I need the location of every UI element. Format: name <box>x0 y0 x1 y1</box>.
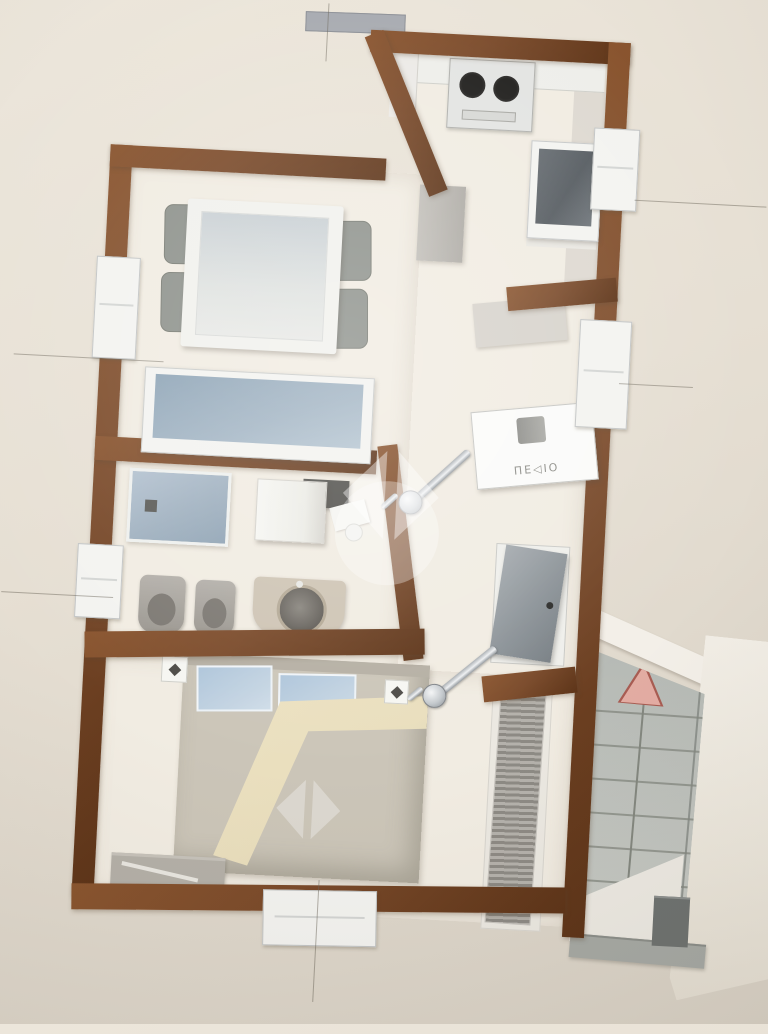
dimension-line <box>635 200 767 208</box>
stair-tread-line <box>583 777 697 787</box>
shower-tray <box>126 468 232 547</box>
bedside-lamp <box>384 679 409 704</box>
burner-icon <box>459 71 486 98</box>
window-right-kitchen <box>590 128 640 212</box>
wall-bedroom-top-left <box>84 629 424 658</box>
shower-drain-icon <box>145 500 158 513</box>
panel-display <box>516 416 546 444</box>
watermark-logo-small <box>275 776 342 843</box>
stair-tread-line <box>589 709 703 719</box>
sink-basin <box>275 584 328 637</box>
dining-table <box>180 198 344 354</box>
dimension-line <box>619 383 693 388</box>
bidet-bowl <box>202 598 228 629</box>
pillow <box>197 665 273 711</box>
stair-wall-stub <box>652 896 691 948</box>
stair-tread-line <box>580 811 694 821</box>
table-glass <box>195 211 329 342</box>
decor-stick <box>121 861 198 882</box>
watermark-logo <box>331 444 447 570</box>
floorplan-render: { "labels": { "utility_panel": "ΠΕ◁ΙΟ" }… <box>0 0 768 1024</box>
panel-label: ΠΕ◁ΙΟ <box>476 458 597 481</box>
stairs-direction-arrow-icon <box>621 664 664 705</box>
cooktop-controls <box>462 110 516 123</box>
toilet <box>137 574 186 634</box>
apartment-plan: ΠΕ◁ΙΟ <box>20 6 691 1025</box>
tall-cabinet <box>416 184 466 262</box>
window-left-living <box>92 256 141 360</box>
burner-icon <box>493 75 520 102</box>
window-right-hall <box>575 319 633 430</box>
bedside-lamp <box>161 656 188 683</box>
toilet-bowl <box>147 593 177 626</box>
bidet <box>193 579 236 637</box>
cooktop <box>446 58 536 132</box>
lamp-glyph-icon <box>390 686 403 699</box>
door-glass <box>535 149 595 227</box>
lamp-glyph-icon <box>168 663 181 676</box>
window-glass <box>153 374 364 449</box>
window-bottom-bedroom <box>262 889 377 947</box>
window-left-bath <box>74 543 124 619</box>
stair-tread-line <box>586 743 700 753</box>
water-heater <box>254 478 327 544</box>
door-handle-icon <box>546 602 554 610</box>
stair-tread-line <box>577 845 691 855</box>
